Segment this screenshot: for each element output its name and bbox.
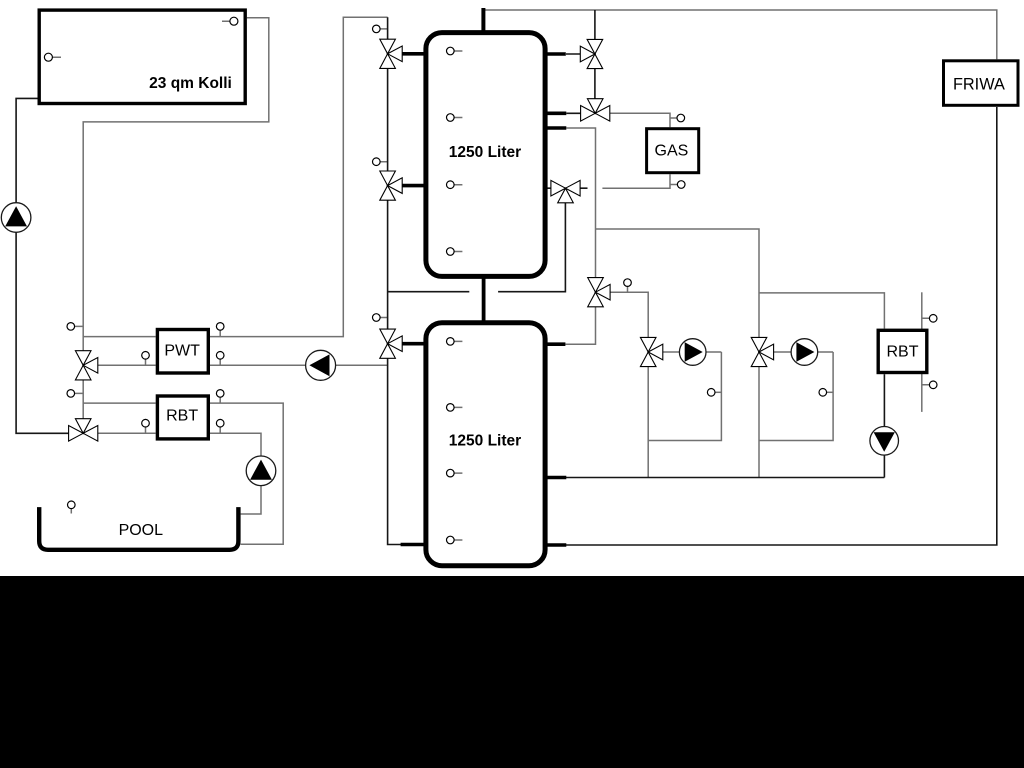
svg-text:GAS: GAS	[655, 143, 689, 160]
svg-text:23 qm Kolli: 23 qm Kolli	[149, 75, 232, 92]
svg-text:FRIWA: FRIWA	[953, 75, 1005, 93]
svg-text:RBT: RBT	[887, 344, 919, 361]
svg-text:RBT: RBT	[166, 408, 198, 425]
svg-text:1250 Liter: 1250 Liter	[449, 144, 521, 161]
svg-text:1250 Liter: 1250 Liter	[449, 433, 521, 450]
svg-text:PWT: PWT	[164, 342, 200, 359]
svg-text:POOL: POOL	[119, 522, 164, 539]
